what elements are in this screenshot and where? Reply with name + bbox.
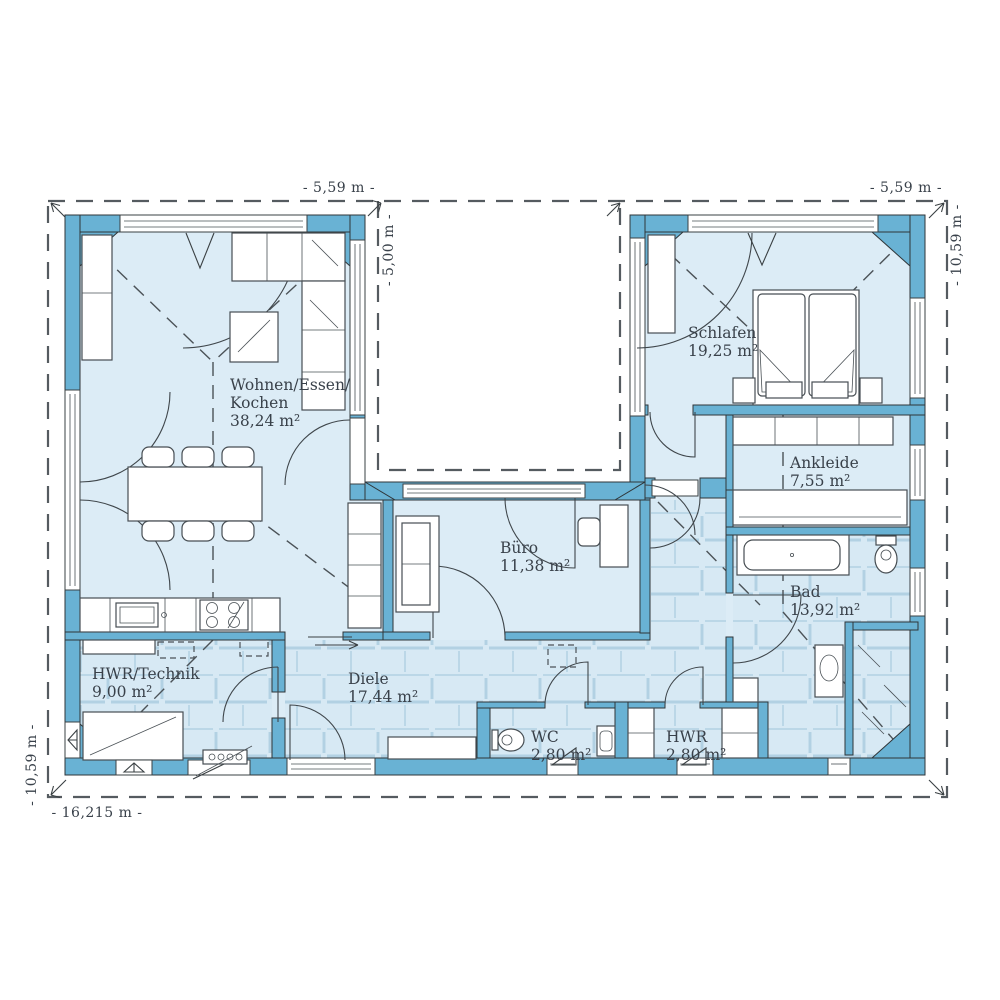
office-sofa-icon xyxy=(396,516,439,612)
utility-block-icon xyxy=(83,712,183,760)
stove-icon xyxy=(200,600,248,630)
window-buero-courtyard xyxy=(403,484,585,498)
entrance-door xyxy=(652,480,698,496)
room-label-wc: WC xyxy=(531,728,559,746)
kitchen-counter-icon xyxy=(80,598,280,632)
room-area-buero: 11,38 m² xyxy=(500,557,570,575)
room-label-diele: Diele xyxy=(348,670,389,688)
dim-courtyard-depth: - 5,00 m - xyxy=(381,214,397,286)
dim-top-left: - 5,59 m - xyxy=(303,180,375,196)
room-label-buero: Büro xyxy=(500,539,538,557)
window-ankleide-east xyxy=(910,445,925,500)
room-label-bad: Bad xyxy=(790,583,821,601)
vent-icon xyxy=(116,760,152,775)
worktop-icon xyxy=(83,640,155,654)
window-schlafen-courtyard xyxy=(630,238,645,416)
dim-top-right: - 5,59 m - xyxy=(870,180,942,196)
shelf-icon xyxy=(348,503,381,628)
room-area-diele: 17,44 m² xyxy=(348,688,418,706)
room-area-bad: 13,92 m² xyxy=(790,601,860,619)
toilet-bad-icon xyxy=(875,536,897,573)
room-label-hwr: HWR xyxy=(666,728,708,746)
room-area-hwr: 2,80 m² xyxy=(666,746,726,764)
room-area-wc: 2,80 m² xyxy=(531,746,591,764)
vent-icon xyxy=(65,722,80,758)
room-area-schlafen: 19,25 m² xyxy=(688,342,758,360)
door-wohnen-courtyard xyxy=(350,418,365,484)
window-wohnen-courtyard xyxy=(350,240,365,415)
room-area-hwr-technik: 9,00 m² xyxy=(92,683,152,701)
dim-left-side: - 10,59 m - xyxy=(24,724,40,806)
window-wohnen-north xyxy=(120,215,307,232)
dim-right-side: - 10,59 m - xyxy=(949,204,965,286)
cabinet-icon xyxy=(82,235,112,360)
room-area-wohnen: 38,24 m² xyxy=(230,412,300,430)
room-label-hwr-technik: HWR/Technik xyxy=(92,665,200,683)
window-bad-south xyxy=(828,758,850,775)
washbasin-wc-icon xyxy=(597,726,615,756)
window-door-wohnen-west xyxy=(65,390,80,590)
floor-plan: Wohnen/Essen/ Kochen 38,24 m² Schlafen 1… xyxy=(0,0,1000,1000)
toilet-wc-icon xyxy=(492,729,524,751)
terrace-door-diele xyxy=(287,758,375,775)
sideboard-icon xyxy=(388,737,476,759)
room-area-ankleide: 7,55 m² xyxy=(790,472,850,490)
coffee-table-icon xyxy=(230,312,278,362)
room-label-schlafen: Schlafen xyxy=(688,324,756,342)
dining-table-icon xyxy=(128,447,262,541)
closet-icon xyxy=(648,235,675,333)
window-bad-east xyxy=(910,568,925,616)
room-label-wohnen-2: Kochen xyxy=(230,394,288,412)
washbasin-bad-icon xyxy=(815,645,843,697)
floor-plan-page: Wohnen/Essen/ Kochen 38,24 m² Schlafen 1… xyxy=(0,0,1000,1000)
dim-bottom: - 16,215 m - xyxy=(51,805,142,821)
room-label-wohnen: Wohnen/Essen/ xyxy=(230,376,351,394)
bathtub-icon xyxy=(737,535,849,575)
window-schlafen-north xyxy=(688,215,878,232)
window-schlafen-east xyxy=(910,298,925,398)
room-label-ankleide: Ankleide xyxy=(789,454,859,472)
